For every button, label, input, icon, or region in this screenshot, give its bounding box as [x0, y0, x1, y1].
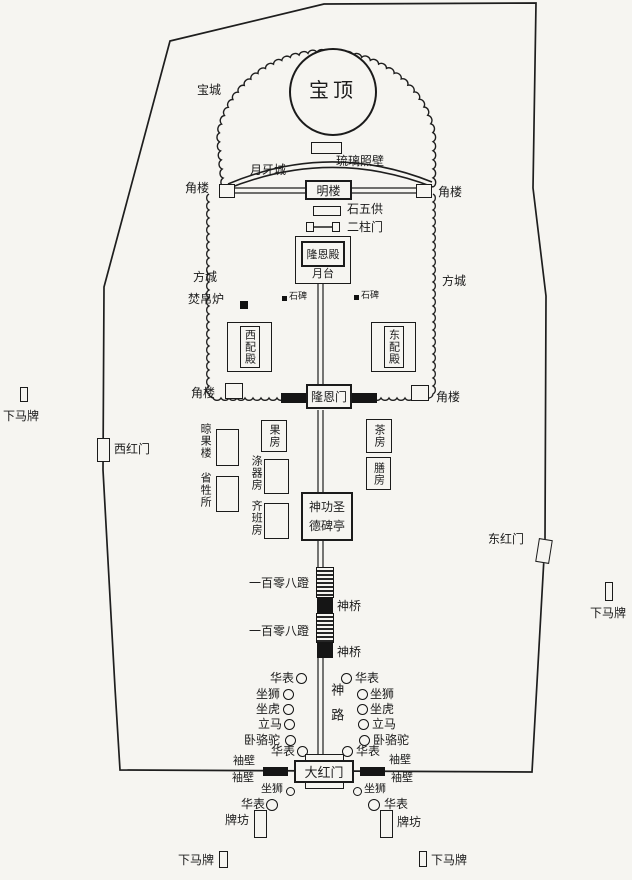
stairs-108-upper	[316, 567, 334, 598]
chafang-building: 茶房	[366, 419, 392, 453]
wall-segment-west-of-longenmen	[281, 393, 306, 403]
label-zuoshi-gate-w: 坐狮	[261, 783, 283, 795]
label-paifang-e: 牌坊	[397, 816, 421, 829]
label-yueyacheng: 月牙城	[250, 164, 286, 177]
label-liangguolou: 晾果楼	[199, 423, 211, 459]
label-baocheng: 宝城	[197, 84, 221, 97]
label-jiaolou-sw: 角楼	[191, 387, 215, 400]
label-xiubi-wl: 袖壁	[232, 772, 254, 784]
longenmen-gate: 隆恩门	[306, 384, 352, 409]
label-diqifang: 涤器房	[250, 455, 262, 491]
label-shibei-east: 石碑	[361, 292, 379, 302]
label-fangcheng-west: 方城	[193, 271, 217, 284]
moon-terrace: 隆恩殿 月台	[295, 236, 351, 284]
label-beiting: 神功圣德碑亭	[306, 498, 348, 535]
stone-tablet-east	[354, 295, 359, 300]
label-erzhumen: 二柱门	[347, 221, 383, 234]
label-shanfang: 膳房	[371, 462, 387, 486]
corner-tower-nw	[219, 184, 235, 198]
label-108-steps-2: 一百零八蹬	[249, 625, 309, 638]
label-baoding: 宝顶	[304, 79, 362, 101]
label-shenlu: 神路	[328, 683, 342, 733]
label-zuoshi-gate-e: 坐狮	[364, 783, 386, 795]
label-xiamapai-w: 下马牌	[3, 410, 39, 423]
two-pillar-gate-left	[306, 222, 314, 232]
stone-five-offerings	[313, 206, 341, 216]
label-dongpeidian: 东配殿	[384, 326, 404, 368]
wall-segment-east-of-longenmen	[352, 393, 377, 403]
label-paifang-w: 牌坊	[225, 814, 249, 827]
shanfang-building: 膳房	[366, 457, 391, 490]
two-pillar-gate-right	[332, 222, 340, 232]
label-jiaolou-se: 角楼	[436, 391, 460, 404]
dahongmen-gate: 大红门	[294, 760, 354, 783]
liuli-screen-wall	[311, 142, 342, 154]
stone-tablet-west	[282, 296, 287, 301]
zuoshi-statue-gate-w	[286, 787, 295, 796]
label-lima-e: 立马	[372, 718, 396, 731]
xiamapai-tablet-w	[20, 387, 28, 402]
label-xiamapai-sw: 下马牌	[178, 854, 214, 867]
label-zuohu-e: 坐虎	[370, 703, 394, 716]
zuoshi-statue-w	[283, 689, 294, 700]
label-liulizhaobi: 琉璃照壁	[336, 155, 384, 168]
label-xihongmen: 西红门	[114, 443, 150, 456]
label-shibei-west: 石碑	[289, 293, 307, 303]
east-side-hall: 东配殿	[371, 322, 416, 372]
paifang-archway-w	[254, 810, 267, 838]
diqifang-building	[264, 459, 289, 494]
label-zuoshi-e: 坐狮	[370, 688, 394, 701]
label-shiwugong: 石五供	[347, 203, 383, 216]
xiamapai-tablet-se	[419, 851, 427, 867]
xiamapai-tablet-sw	[219, 851, 228, 868]
label-xiubi-eu: 袖壁	[389, 754, 411, 766]
sacred-bridge-lower	[317, 643, 333, 658]
fenbolu-furnace	[240, 301, 248, 309]
sacred-bridge-upper	[317, 598, 333, 613]
label-qibanfang: 齐班房	[250, 500, 262, 536]
west-side-hall: 西配殿	[227, 322, 272, 372]
xiubi-wall-west	[263, 767, 288, 776]
xiubi-wall-east	[360, 767, 385, 776]
label-huabiao-se-inner: 华表	[356, 745, 380, 758]
shengshengsuo-building	[216, 476, 239, 512]
corner-tower-ne	[416, 184, 432, 198]
corner-tower-sw	[225, 383, 243, 399]
label-jiaolou-ne: 角楼	[438, 186, 462, 199]
stele-pavilion: 神功圣德碑亭	[301, 492, 353, 541]
label-huabiao-sw-inner: 华表	[271, 745, 295, 758]
paifang-archway-e	[380, 810, 393, 838]
xihongmen-gate	[97, 438, 110, 462]
xiamapai-tablet-e	[605, 582, 613, 601]
huabiao-statue-nw	[296, 673, 307, 684]
label-xipeidian: 西配殿	[240, 326, 260, 368]
corner-tower-se	[411, 385, 429, 401]
label-108-steps-1: 一百零八蹬	[249, 577, 309, 590]
longendian-hall: 隆恩殿	[301, 241, 345, 267]
label-donghongmen: 东红门	[488, 533, 524, 546]
label-xiubi-wu: 袖壁	[233, 755, 255, 767]
lima-statue-e	[358, 719, 369, 730]
label-lima-w: 立马	[258, 718, 282, 731]
label-shenqiao-1: 神桥	[337, 600, 361, 613]
label-xiamapai-e: 下马牌	[590, 607, 626, 620]
label-yuetai: 月台	[312, 268, 334, 280]
zuohu-statue-w	[283, 704, 294, 715]
label-xiubi-el: 袖壁	[391, 772, 413, 784]
zuoshi-statue-gate-e	[353, 787, 362, 796]
tomb-plan-diagram: 宝顶 宝城 月牙城 琉璃照壁 明楼 角楼 角楼 石五供 二柱门 隆恩殿 月台 方…	[0, 0, 632, 880]
label-guofang: 果房	[266, 424, 282, 448]
label-huabiao-ne: 华表	[355, 672, 379, 685]
liangguolou-building	[216, 429, 239, 466]
stairs-108-lower	[316, 613, 334, 643]
label-xiamapai-se: 下马牌	[431, 854, 467, 867]
label-chafang: 茶房	[371, 424, 387, 448]
zuohu-statue-e	[357, 704, 368, 715]
guofang-building: 果房	[261, 420, 287, 452]
label-shenqiao-2: 神桥	[337, 646, 361, 659]
label-huabiao-gate-w: 华表	[241, 798, 265, 811]
label-jiaolou-nw: 角楼	[185, 182, 209, 195]
minglou-tower: 明楼	[305, 180, 352, 200]
label-fangcheng-east: 方城	[442, 275, 466, 288]
label-shengshengsuo: 省牲所	[199, 472, 211, 508]
label-zuoshi-w: 坐狮	[256, 688, 280, 701]
label-huabiao-gate-e: 华表	[384, 798, 408, 811]
label-huabiao-nw: 华表	[270, 672, 294, 685]
huabiao-statue-gate-w	[266, 799, 278, 811]
label-zuohu-w: 坐虎	[256, 703, 280, 716]
huabiao-statue-gate-e	[368, 799, 380, 811]
lima-statue-w	[284, 719, 295, 730]
zuoshi-statue-e	[357, 689, 368, 700]
label-fenbolu: 焚帛炉	[188, 293, 224, 306]
qibanfang-building	[264, 503, 289, 539]
